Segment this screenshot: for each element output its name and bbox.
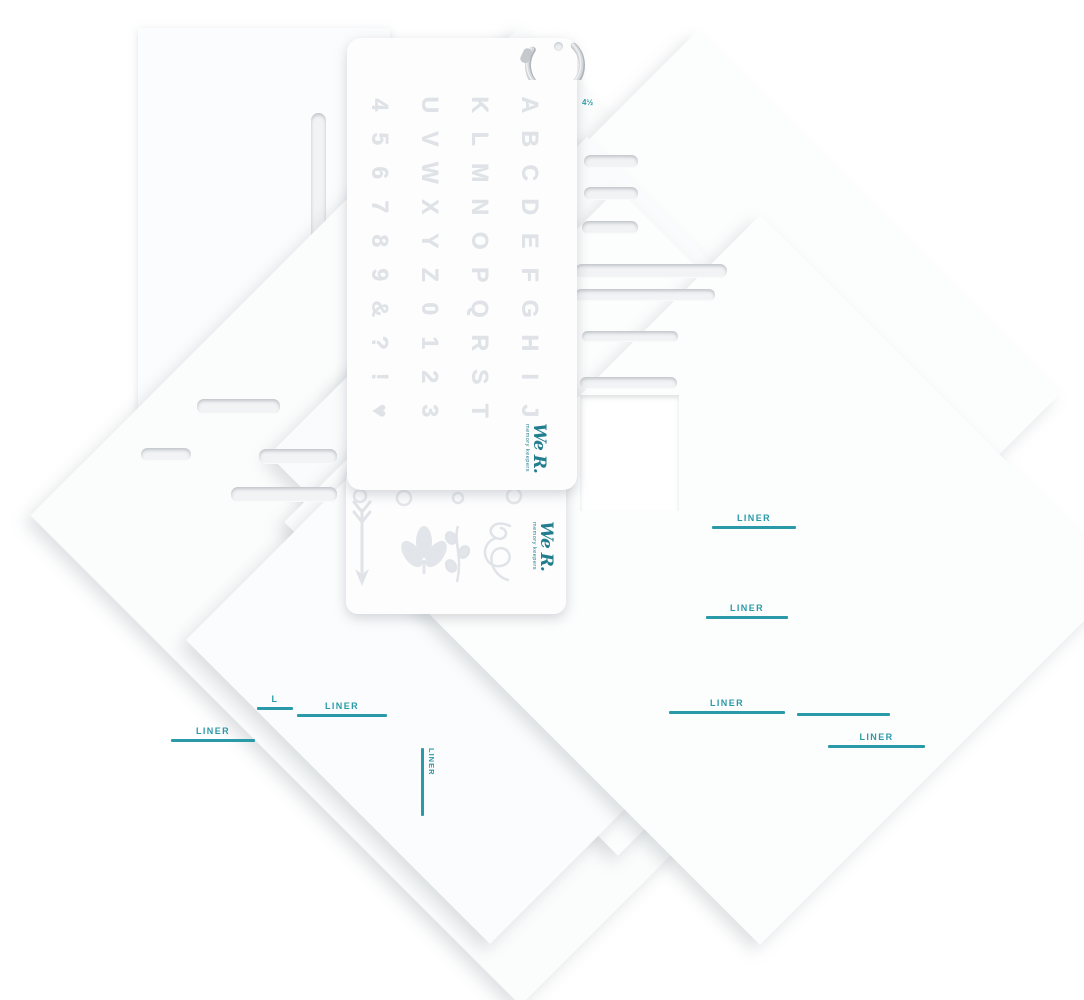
partial-glyphs (354, 489, 521, 505)
stencil-character: 0 (415, 294, 445, 324)
slot-cutout (582, 331, 678, 342)
liner-text: LINER (196, 726, 230, 737)
liner-line (797, 713, 890, 716)
brand-title: We R. (537, 521, 554, 571)
metal-ring (498, 0, 598, 80)
window-cutout (580, 395, 679, 511)
stencil-character: ? (365, 328, 395, 358)
stencil-character: U (415, 90, 445, 120)
stencil-character: ! (365, 362, 395, 392)
brand-subtitle: memory keepers (524, 424, 530, 472)
stencil-character: N (465, 192, 495, 222)
stencil-character: C (515, 158, 545, 188)
product-photo-stage: 4½ (0, 0, 1084, 1000)
stencil-character: 6 (365, 158, 395, 188)
stencil-character: M (465, 158, 495, 188)
stencil-character: T (465, 396, 495, 426)
stencil-character: E (515, 226, 545, 256)
stencil-column: ABCDEFGHIJ (515, 90, 545, 426)
stencil-character: & (365, 294, 395, 324)
brand-subtitle: memory keepers (531, 522, 537, 570)
leaf-sprig-icon (397, 526, 451, 574)
liner-text: LINER (426, 748, 437, 776)
liner-text: LINER (737, 513, 771, 524)
stencil-character: 2 (415, 362, 445, 392)
stencil-column: UVWXYZ0123 (415, 90, 445, 426)
stencil-character: H (515, 328, 545, 358)
liner-line (297, 714, 387, 717)
stencil-character: 4 (365, 90, 395, 120)
liner-label: LINER (171, 726, 255, 742)
liner-label: LINER (706, 603, 788, 619)
stencil-character: D (515, 192, 545, 222)
liner-label: LINER (421, 748, 437, 816)
stencil-character: K (465, 90, 495, 120)
liner-line (712, 526, 796, 529)
liner-label: LINER (297, 701, 387, 717)
liner-label (797, 700, 890, 716)
flourish-icon (485, 524, 510, 580)
stencil-character: 5 (365, 124, 395, 154)
stencil-character: 7 (365, 192, 395, 222)
arrow-icon (354, 502, 370, 586)
liner-line (706, 616, 788, 619)
liner-text: L (272, 694, 279, 705)
stencil-column: 456789&?!♥ (365, 90, 395, 426)
stencil-character: W (415, 158, 445, 188)
liner-label: LINER (669, 698, 785, 714)
stencil-character: ♥ (365, 396, 395, 426)
slot-cutout (584, 155, 638, 168)
stencil-character: B (515, 124, 545, 154)
size-label: 4½ (582, 98, 593, 107)
liner-label: L (257, 694, 293, 710)
slot-cutout (141, 448, 191, 461)
stencil-character: Z (415, 260, 445, 290)
stencil-character: O (465, 226, 495, 256)
liner-text: LINER (325, 701, 359, 712)
alphabet-stencil-card: ABCDEFGHIJ KLMNOPQRST UVWXYZ0123 456789&… (347, 38, 577, 490)
stencil-character: R (465, 328, 495, 358)
liner-line (257, 707, 293, 710)
liner-label: LINER (828, 732, 925, 748)
stencil-character: Y (415, 226, 445, 256)
stencil-character: X (415, 192, 445, 222)
stencil-character: P (465, 260, 495, 290)
stencil-character: L (465, 124, 495, 154)
vine-icon (444, 526, 471, 582)
brand-logo: We R. memory keepers (519, 416, 547, 480)
stencil-column: KLMNOPQRST (465, 90, 495, 426)
stencil-character: 3 (415, 396, 445, 426)
liner-line (421, 748, 424, 816)
slot-cutout (259, 449, 337, 464)
liner-text: LINER (860, 732, 894, 743)
stencil-character: 1 (415, 328, 445, 358)
stencil-character: 8 (365, 226, 395, 256)
stencil-character: G (515, 294, 545, 324)
slot-cutout (575, 264, 727, 278)
slot-cutout (575, 289, 715, 301)
stencil-character: Q (465, 294, 495, 324)
stencil-character: I (515, 362, 545, 392)
liner-text: LINER (710, 698, 744, 709)
stencil-character: S (465, 362, 495, 392)
brand-title: We R. (530, 423, 547, 473)
brand-logo: We R. memory keepers (526, 514, 554, 578)
liner-line (669, 711, 785, 714)
slot-cutout (231, 487, 337, 502)
liner-line (828, 745, 925, 748)
slot-cutout (584, 187, 638, 200)
liner-text: LINER (730, 603, 764, 614)
liner-line (171, 739, 255, 742)
slot-cutout (582, 221, 638, 234)
stencil-character: F (515, 260, 545, 290)
slot-cutout (197, 399, 280, 414)
slot-cutout (580, 377, 677, 389)
stencil-character: V (415, 124, 445, 154)
stencil-character: A (515, 90, 545, 120)
stencil-character: 9 (365, 260, 395, 290)
liner-label: LINER (712, 513, 796, 529)
